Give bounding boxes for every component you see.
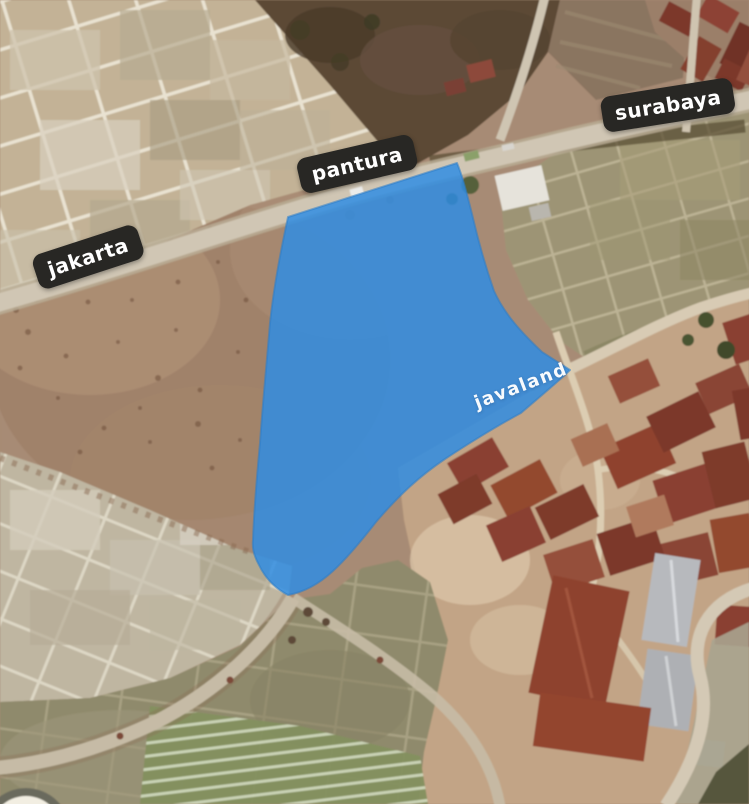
map-screenshot: jakarta pantura surabaya javaland (0, 0, 749, 804)
